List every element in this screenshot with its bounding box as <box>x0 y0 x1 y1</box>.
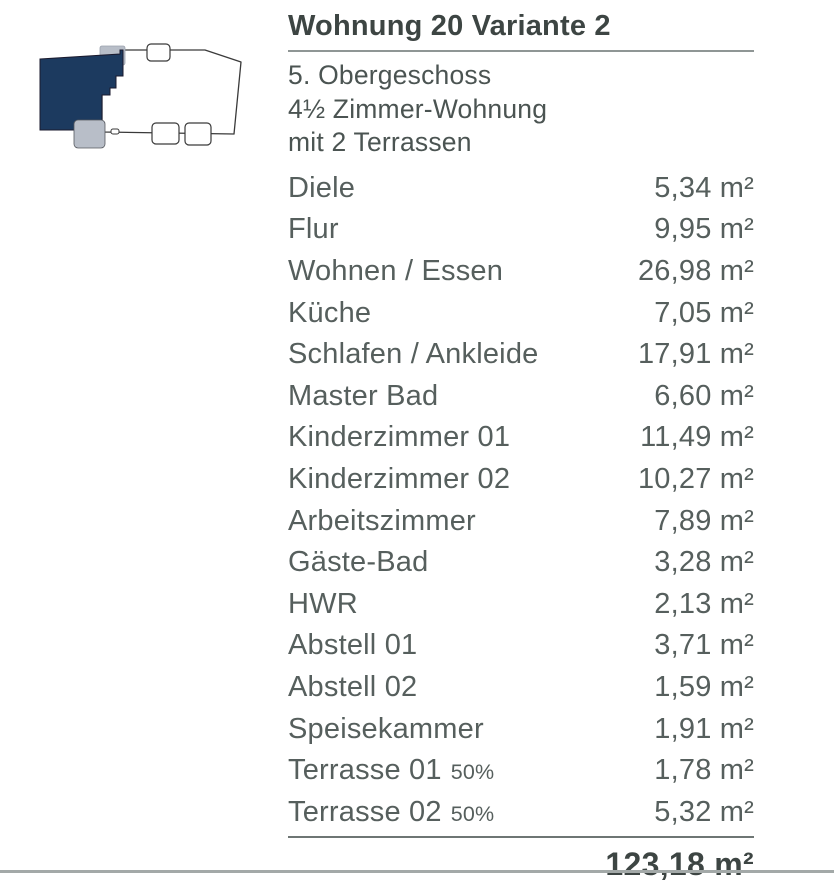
subtitle-room-count: 4½ Zimmer-Wohnung <box>288 93 754 127</box>
terrace-bottom <box>74 120 105 148</box>
content-column: Wohnung 20 Variante 2 5. Obergeschoss 4½… <box>288 10 754 883</box>
room-name: Schlafen / Ankleide <box>288 338 538 371</box>
room-area: 11,49 m² <box>640 421 754 454</box>
room-row: Terrasse 01 50% 1,78 m² <box>288 750 754 792</box>
room-name-wrap: Speisekammer <box>288 713 484 746</box>
room-row: Master Bad 6,60 m² <box>288 375 754 417</box>
room-row: Arbeitszimmer 7,89 m² <box>288 500 754 542</box>
room-name-wrap: Master Bad <box>288 380 438 413</box>
bottom-notch <box>111 129 119 134</box>
room-row: Terrasse 02 50% 5,32 m² <box>288 791 754 833</box>
room-name: Speisekammer <box>288 713 484 746</box>
room-row: Kinderzimmer 01 11,49 m² <box>288 417 754 459</box>
room-name: Terrasse 02 <box>288 796 442 829</box>
room-name-wrap: Arbeitszimmer <box>288 505 476 538</box>
room-name-wrap: Abstell 01 <box>288 629 417 662</box>
room-name-wrap: Gäste-Bad <box>288 546 428 579</box>
room-name-wrap: Kinderzimmer 02 <box>288 463 510 496</box>
room-area: 1,59 m² <box>654 671 754 704</box>
room-area: 10,27 m² <box>638 463 754 496</box>
room-area: 2,13 m² <box>654 588 754 621</box>
room-row: HWR 2,13 m² <box>288 583 754 625</box>
room-area: 5,34 m² <box>654 172 754 205</box>
room-name: Flur <box>288 213 339 246</box>
balcony-bottom-right <box>185 123 211 145</box>
room-area: 7,05 m² <box>654 297 754 330</box>
room-name: Abstell 02 <box>288 671 417 704</box>
balcony-top <box>147 44 170 61</box>
room-row: Küche 7,05 m² <box>288 292 754 334</box>
room-name: Kinderzimmer 02 <box>288 463 510 496</box>
room-area: 26,98 m² <box>638 255 754 288</box>
room-area: 3,28 m² <box>654 546 754 579</box>
room-name: Küche <box>288 297 371 330</box>
room-name: Gäste-Bad <box>288 546 428 579</box>
subtitle-block: 5. Obergeschoss 4½ Zimmer-Wohnung mit 2 … <box>288 59 754 160</box>
room-row: Wohnen / Essen 26,98 m² <box>288 251 754 293</box>
room-row: Speisekammer 1,91 m² <box>288 708 754 750</box>
page-title: Wohnung 20 Variante 2 <box>288 10 754 52</box>
room-name: Terrasse 01 <box>288 754 442 787</box>
room-area: 5,32 m² <box>654 796 754 829</box>
room-name-wrap: Abstell 02 <box>288 671 417 704</box>
room-row: Diele 5,34 m² <box>288 168 754 210</box>
room-name-wrap: Schlafen / Ankleide <box>288 338 538 371</box>
room-row: Gäste-Bad 3,28 m² <box>288 542 754 584</box>
total-area: 123,18 m² <box>288 838 754 883</box>
room-row: Abstell 02 1,59 m² <box>288 667 754 709</box>
room-area: 1,78 m² <box>654 754 754 787</box>
room-name-wrap: Küche <box>288 297 371 330</box>
room-name-wrap: Wohnen / Essen <box>288 255 503 288</box>
balcony-bottom-left <box>152 123 179 144</box>
page-bottom-rule <box>0 870 834 873</box>
room-note: 50% <box>451 760 495 785</box>
room-note: 50% <box>451 802 495 827</box>
room-name-wrap: Flur <box>288 213 339 246</box>
subtitle-floor: 5. Obergeschoss <box>288 59 754 93</box>
room-area: 17,91 m² <box>638 338 754 371</box>
room-area: 6,60 m² <box>654 380 754 413</box>
room-area: 7,89 m² <box>654 505 754 538</box>
room-area: 9,95 m² <box>654 213 754 246</box>
room-row: Flur 9,95 m² <box>288 209 754 251</box>
room-name: Arbeitszimmer <box>288 505 476 538</box>
room-row: Kinderzimmer 02 10,27 m² <box>288 459 754 501</box>
room-name-wrap: Terrasse 01 50% <box>288 754 494 787</box>
apartment-datasheet-page: { "floorplan": { "alt": "building-footpr… <box>0 0 834 878</box>
room-name: Abstell 01 <box>288 629 417 662</box>
room-name: Wohnen / Essen <box>288 255 503 288</box>
room-name: Diele <box>288 172 355 205</box>
room-list: Diele 5,34 m² Flur 9,95 m² Wohnen / Esse… <box>288 168 754 834</box>
room-row: Schlafen / Ankleide 17,91 m² <box>288 334 754 376</box>
room-area: 1,91 m² <box>654 713 754 746</box>
room-name: Kinderzimmer 01 <box>288 421 510 454</box>
room-name: HWR <box>288 588 358 621</box>
room-name-wrap: Terrasse 02 50% <box>288 796 494 829</box>
room-name-wrap: Kinderzimmer 01 <box>288 421 510 454</box>
room-name-wrap: HWR <box>288 588 358 621</box>
room-area: 3,71 m² <box>654 629 754 662</box>
floorplan-thumbnail <box>32 38 247 154</box>
room-name-wrap: Diele <box>288 172 355 205</box>
room-name: Master Bad <box>288 380 438 413</box>
subtitle-terraces: mit 2 Terrassen <box>288 126 754 160</box>
room-row: Abstell 01 3,71 m² <box>288 625 754 667</box>
